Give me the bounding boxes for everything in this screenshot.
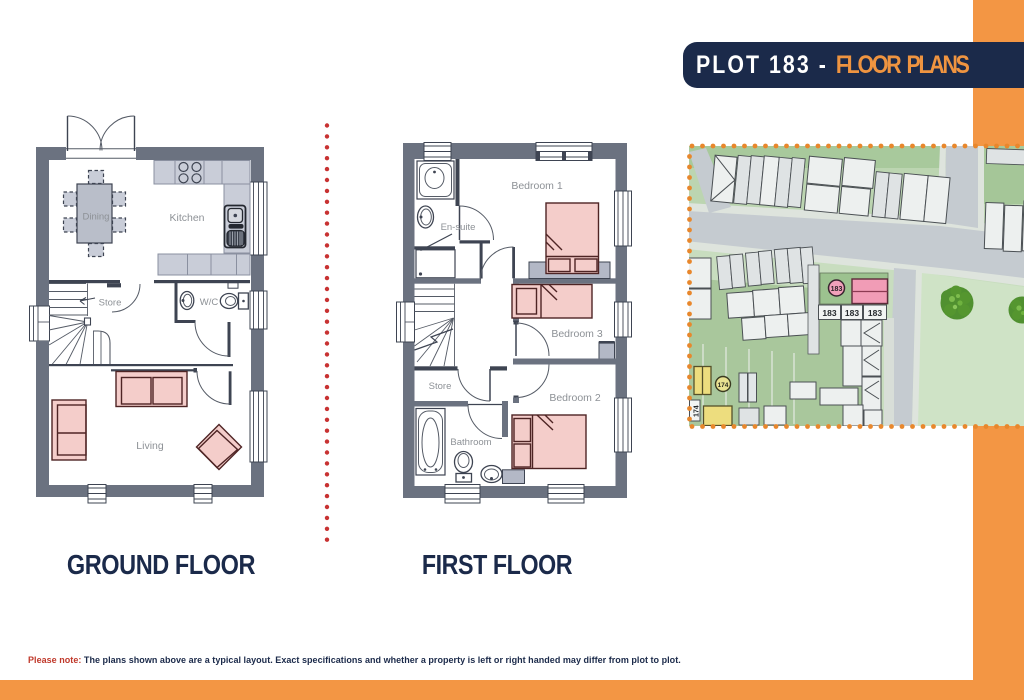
svg-text:Store: Store — [99, 298, 122, 309]
svg-text:174: 174 — [718, 382, 729, 389]
svg-text:183: 183 — [831, 286, 843, 293]
svg-text:Bedroom 2: Bedroom 2 — [549, 392, 601, 404]
svg-text:Store: Store — [429, 381, 452, 392]
svg-text:W/C: W/C — [200, 297, 219, 308]
svg-text:183: 183 — [845, 308, 859, 318]
svg-text:183: 183 — [822, 308, 836, 318]
svg-text:Bedroom 1: Bedroom 1 — [511, 180, 563, 192]
svg-text:En-suite: En-suite — [441, 222, 476, 233]
svg-text:Dining: Dining — [83, 212, 110, 223]
svg-text:Kitchen: Kitchen — [169, 212, 204, 224]
svg-text:Living: Living — [136, 440, 164, 452]
svg-text:Bedroom 3: Bedroom 3 — [551, 328, 603, 340]
svg-text:Bathroom: Bathroom — [450, 437, 491, 448]
svg-text:183: 183 — [868, 308, 882, 318]
svg-text:174: 174 — [694, 405, 701, 417]
